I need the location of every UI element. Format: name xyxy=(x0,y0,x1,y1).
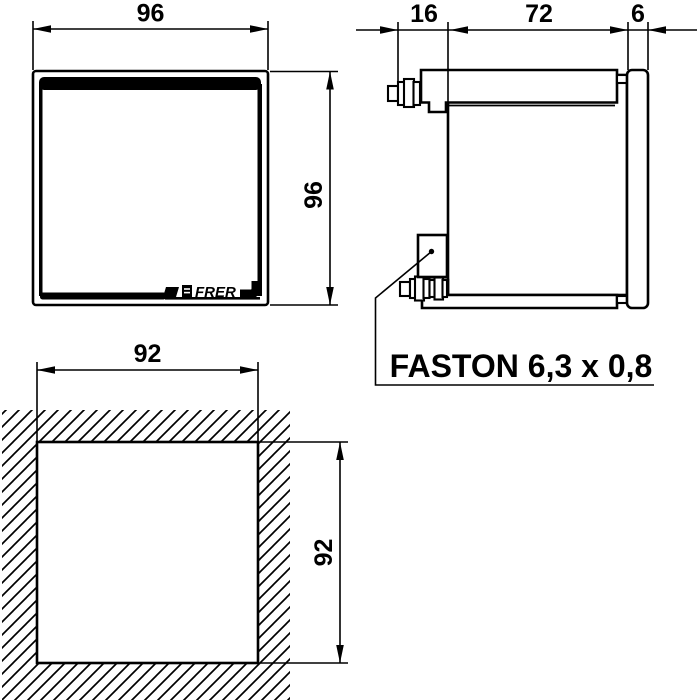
arrowhead-left xyxy=(37,366,55,374)
arrowhead-right xyxy=(610,26,628,34)
faston-label: FASTON 6,3 x 0,8 xyxy=(390,348,653,384)
body-depth-label: 72 xyxy=(525,0,553,28)
front-window-bottom-bar xyxy=(40,293,166,300)
brand-text: FRER xyxy=(195,284,236,301)
arrowhead-up xyxy=(336,442,344,460)
bezel-depth-label: 6 xyxy=(631,0,645,28)
arrowhead-left xyxy=(648,26,666,34)
logo-emblem-slit xyxy=(184,292,190,294)
arrowhead-left xyxy=(450,26,468,34)
arrowhead-right xyxy=(380,26,398,34)
side-body xyxy=(448,75,627,295)
arrowhead-down xyxy=(326,287,334,305)
dimension-drawing: FRER 96 96 xyxy=(0,0,700,700)
technical-drawing-page: FRER 96 96 xyxy=(0,0,700,700)
faston-leader-dot xyxy=(429,249,434,254)
arrowhead-right xyxy=(240,366,258,374)
faston-bracket xyxy=(418,235,447,277)
side-top-connector xyxy=(617,75,627,83)
cutout-square xyxy=(37,442,258,663)
side-front-bezel xyxy=(627,70,648,308)
front-height-label: 96 xyxy=(300,181,328,209)
front-window-left-edge xyxy=(39,84,43,296)
bottom-terminal-stud xyxy=(400,277,447,301)
arrowhead-right xyxy=(250,25,268,33)
logo-emblem-slit xyxy=(184,288,190,290)
cutout-height-label: 92 xyxy=(310,539,338,567)
cutout-width-label: 92 xyxy=(134,340,162,368)
side-bottom-connector xyxy=(617,296,627,303)
front-height-dimension: 96 xyxy=(270,72,338,306)
front-window-top-bar xyxy=(39,77,261,90)
arrowhead-up xyxy=(326,72,334,90)
top-terminal-stud xyxy=(388,79,420,107)
arrowhead-left xyxy=(33,25,51,33)
front-outer-case xyxy=(33,71,268,305)
front-view: FRER 96 96 xyxy=(33,0,338,305)
logo-emblem-icon xyxy=(182,285,192,297)
front-width-label: 96 xyxy=(137,0,165,28)
front-window-right-edge xyxy=(258,84,263,296)
arrowhead-down xyxy=(336,645,344,663)
front-width-dimension: 96 xyxy=(33,0,268,70)
terminal-protrusion-label: 16 xyxy=(410,0,438,28)
side-view: FASTON 6,3 x 0,8 16 72 6 xyxy=(356,0,697,385)
panel-cutout-view: 92 92 xyxy=(2,340,348,700)
